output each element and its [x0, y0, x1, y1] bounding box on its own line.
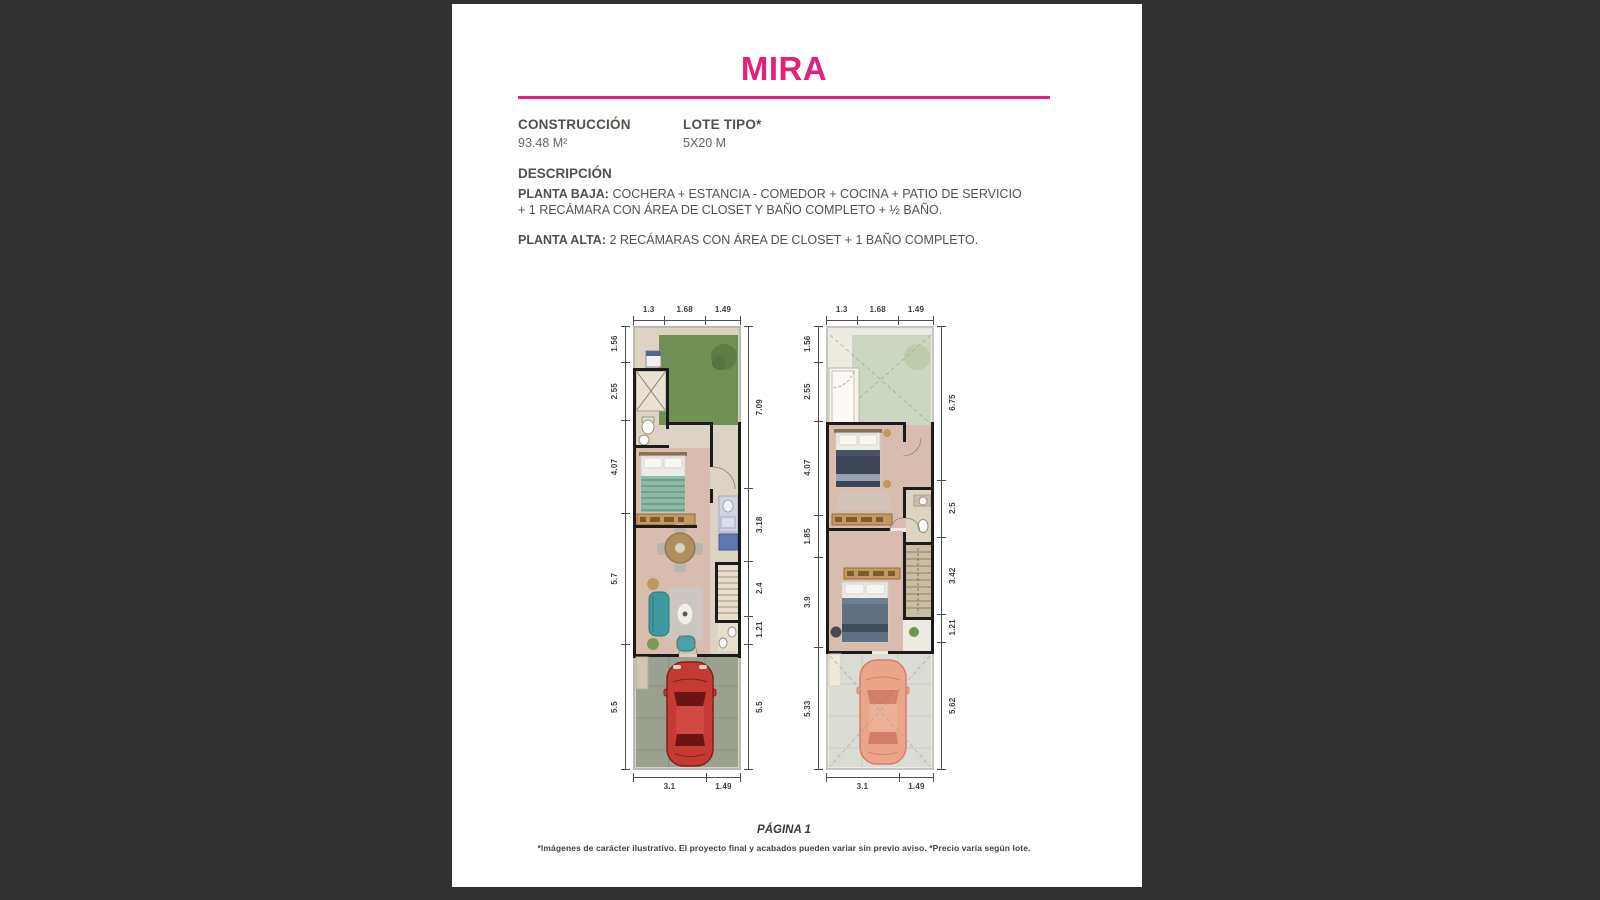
dimension-label: 1.68 [857, 305, 898, 314]
dimension-label: 2.55 [609, 362, 620, 420]
dimensions-top: 1.31.681.49 [633, 296, 741, 326]
kitchen [719, 496, 738, 550]
dimension-segment: 7.09 [741, 326, 765, 488]
dimension-label: 1.3 [826, 305, 857, 314]
plant [909, 627, 919, 637]
entry-step [636, 657, 648, 689]
rug [838, 492, 890, 510]
washer-icon [646, 351, 661, 367]
dimension-segment: 1.49 [898, 296, 934, 326]
dimension-label: 1.68 [664, 305, 705, 314]
pillow [644, 458, 662, 468]
headboard [834, 429, 882, 433]
dimension-segment: 2.5 [934, 480, 958, 537]
dimension-label: 1.85 [802, 515, 813, 558]
desktop-background: { "window": { "background": "#313131", "… [0, 0, 1600, 900]
dimension-segment: 3.9 [802, 557, 826, 647]
nightstand [883, 480, 891, 488]
plan-drawing-planta-baja [633, 326, 741, 770]
dimension-segment: 1.21 [934, 614, 958, 642]
title-divider [518, 96, 1050, 99]
sink [728, 627, 736, 637]
windshield [674, 692, 706, 706]
dimension-segment: 1.85 [802, 515, 826, 558]
dimension-label: 1.49 [898, 305, 934, 314]
dimension-label: 1.3 [633, 305, 664, 314]
dimension-segment: 4.07 [802, 421, 826, 515]
dimension-segment: 2.4 [741, 561, 765, 616]
spec-construccion: CONSTRUCCIÓN 93.48 M² [518, 117, 683, 150]
toilet [642, 420, 654, 434]
floor-plan-planta-baja: 1.31.681.49 1.562.554.075.75.5 [609, 296, 765, 798]
dimension-segment: 1.56 [802, 326, 826, 362]
dimensions-bottom: 3.11.49 [826, 770, 934, 798]
round-chair [831, 627, 842, 638]
dimension-label: 3.1 [633, 782, 706, 791]
dimension-label: 2.4 [754, 561, 765, 616]
dimensions-right: 7.093.182.41.215.5 [741, 326, 765, 770]
bed-throw [842, 624, 888, 632]
rear-window [675, 734, 705, 746]
dimension-label: 3.42 [947, 537, 958, 615]
dimension-label: 5.5 [754, 644, 765, 770]
garage [636, 657, 738, 767]
planta-alta-text: 2 RECÁMARAS CON ÁREA DE CLOSET + 1 BAÑO … [609, 233, 978, 247]
planta-alta-label: PLANTA ALTA: [518, 233, 606, 247]
dimension-segment: 5.33 [802, 647, 826, 770]
planta-alta-svg [826, 326, 934, 770]
nightstand [883, 429, 891, 437]
blanket [842, 598, 888, 642]
dimension-label: 2.55 [802, 362, 813, 421]
dimensions-left: 1.562.554.075.75.5 [609, 326, 633, 770]
dimension-label: 1.49 [899, 782, 934, 791]
bathroom [906, 490, 931, 542]
dimension-segment: 5.7 [609, 513, 633, 644]
dimension-segment: 1.3 [826, 296, 857, 326]
dimension-segment: 1.68 [857, 296, 898, 326]
dimension-label: 4.07 [609, 420, 620, 513]
disclaimer-text: *Imágenes de carácter ilustrativo. El pr… [518, 843, 1050, 853]
dimension-label: 1.21 [754, 616, 765, 644]
dimension-segment: 1.56 [609, 326, 633, 362]
dimension-segment: 2.55 [802, 362, 826, 421]
plant [647, 638, 659, 650]
description-heading: DESCRIPCIÓN [518, 166, 1050, 181]
brochure-page: MIRA CONSTRUCCIÓN 93.48 M² LOTE TIPO* 5X… [452, 4, 1142, 887]
dimension-label: 3.1 [826, 782, 899, 791]
spec-value: 93.48 M² [518, 136, 683, 150]
floor-plan-planta-alta: 1.31.681.49 1.562.554.071.853.95.33 [802, 296, 958, 798]
stove [721, 517, 735, 528]
dimension-segment: 5.5 [609, 644, 633, 770]
pillow [859, 435, 877, 445]
stairs [906, 545, 931, 617]
planta-baja-svg [633, 326, 741, 770]
dimension-label: 7.09 [754, 326, 765, 488]
dimension-segment: 3.42 [934, 537, 958, 615]
dimension-label: 1.49 [706, 782, 741, 791]
bed-throw [836, 474, 880, 481]
spec-value: 5X20 M [683, 136, 848, 150]
dimension-segment: 1.68 [664, 296, 705, 326]
ghost-patio-door [829, 368, 859, 428]
dimension-segment: 4.07 [609, 420, 633, 513]
spec-label: CONSTRUCCIÓN [518, 117, 683, 132]
sink [639, 435, 649, 445]
side-chair [647, 578, 659, 590]
planta-baja-label: PLANTA BAJA: [518, 187, 609, 201]
dimension-label: 4.07 [802, 421, 813, 515]
pillow [664, 458, 682, 468]
ghost-garage [829, 654, 931, 767]
dimensions-left: 1.562.554.071.853.95.33 [802, 326, 826, 770]
dimension-label: 1.56 [802, 326, 813, 362]
plan-drawing-planta-alta [826, 326, 934, 770]
dimension-label: 5.33 [802, 647, 813, 770]
dimension-segment: 3.1 [633, 770, 706, 798]
description-section: DESCRIPCIÓN PLANTA BAJA: COCHERA + ESTAN… [518, 166, 1050, 249]
pillow [845, 584, 864, 594]
dimension-label: 5.5 [609, 644, 620, 770]
armchair [677, 636, 695, 651]
page-title: MIRA [518, 50, 1050, 88]
specs-row: CONSTRUCCIÓN 93.48 M² LOTE TIPO* 5X20 M [518, 117, 1050, 150]
ghost-car [857, 660, 909, 764]
stairs [718, 565, 738, 620]
dimensions-bottom: 3.11.49 [633, 770, 741, 798]
dimension-label: 2.5 [947, 480, 958, 537]
dimension-label: 1.49 [705, 305, 741, 314]
dimension-segment: 5.62 [934, 642, 958, 770]
entry-step [829, 654, 841, 686]
spec-label: LOTE TIPO* [683, 117, 848, 132]
dimension-label: 1.21 [947, 614, 958, 642]
dimension-label: 1.56 [609, 326, 620, 362]
dimension-label: 3.18 [754, 488, 765, 561]
car [664, 662, 716, 766]
dimension-segment: 1.49 [705, 296, 741, 326]
planta-alta-description: PLANTA ALTA: 2 RECÁMARAS CON ÁREA DE CLO… [518, 233, 1023, 249]
dimension-label: 5.62 [947, 642, 958, 770]
sink [919, 497, 927, 505]
dimension-label: 5.7 [609, 513, 620, 644]
garden [659, 335, 738, 425]
dimension-segment: 6.75 [934, 326, 958, 480]
dimension-segment: 1.49 [899, 770, 934, 798]
dimensions-top: 1.31.681.49 [826, 296, 934, 326]
blanket [641, 476, 685, 512]
half-bathroom [718, 623, 738, 651]
dimension-segment: 5.5 [741, 644, 765, 770]
dimension-label: 6.75 [947, 326, 958, 480]
dimension-label: 3.9 [802, 557, 813, 647]
toilet [719, 638, 727, 648]
kitchen-sink [723, 500, 733, 512]
dimension-segment: 3.18 [741, 488, 765, 561]
dimension-segment: 1.49 [706, 770, 741, 798]
refrigerator [719, 534, 738, 550]
dimensions-right: 6.752.53.421.215.62 [934, 326, 958, 770]
page-number-label: PÁGINA 1 [518, 824, 1050, 836]
dimension-segment: 2.55 [609, 362, 633, 420]
toilet [918, 520, 928, 533]
spec-lote-tipo: LOTE TIPO* 5X20 M [683, 117, 848, 150]
dimension-segment: 3.1 [826, 770, 899, 798]
dimension-segment: 1.21 [741, 616, 765, 644]
dimension-segment: 1.3 [633, 296, 664, 326]
car-roof [676, 706, 704, 734]
pillow [866, 584, 885, 594]
planta-baja-description: PLANTA BAJA: COCHERA + ESTANCIA - COMEDO… [518, 187, 1023, 218]
sofa [649, 592, 669, 636]
pillow [839, 435, 857, 445]
headboard [639, 452, 687, 456]
